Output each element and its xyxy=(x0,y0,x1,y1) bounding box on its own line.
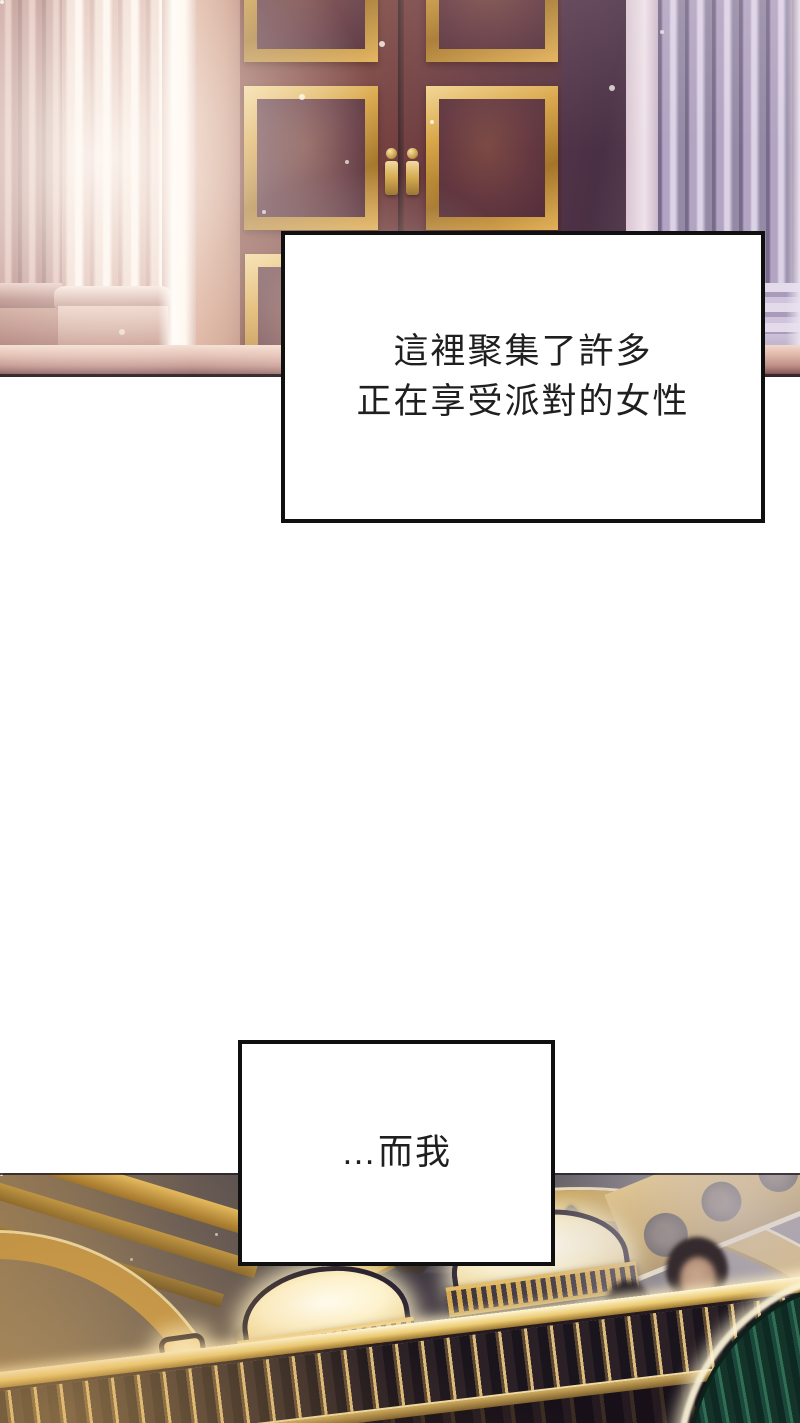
narration-line: …而我 xyxy=(341,1133,452,1172)
narration-text-2: …而我 xyxy=(341,1128,452,1178)
narration-line: 正在享受派對的女性 xyxy=(356,382,689,421)
narration-line: 這裡聚集了許多 xyxy=(393,332,652,371)
narration-box-2: …而我 xyxy=(238,1040,555,1266)
narration-text-1: 這裡聚集了許多 正在享受派對的女性 xyxy=(356,327,689,427)
narration-box-1: 這裡聚集了許多 正在享受派對的女性 xyxy=(281,231,765,523)
comic-page: 這裡聚集了許多 正在享受派對的女性 …而我 xyxy=(0,0,800,1423)
